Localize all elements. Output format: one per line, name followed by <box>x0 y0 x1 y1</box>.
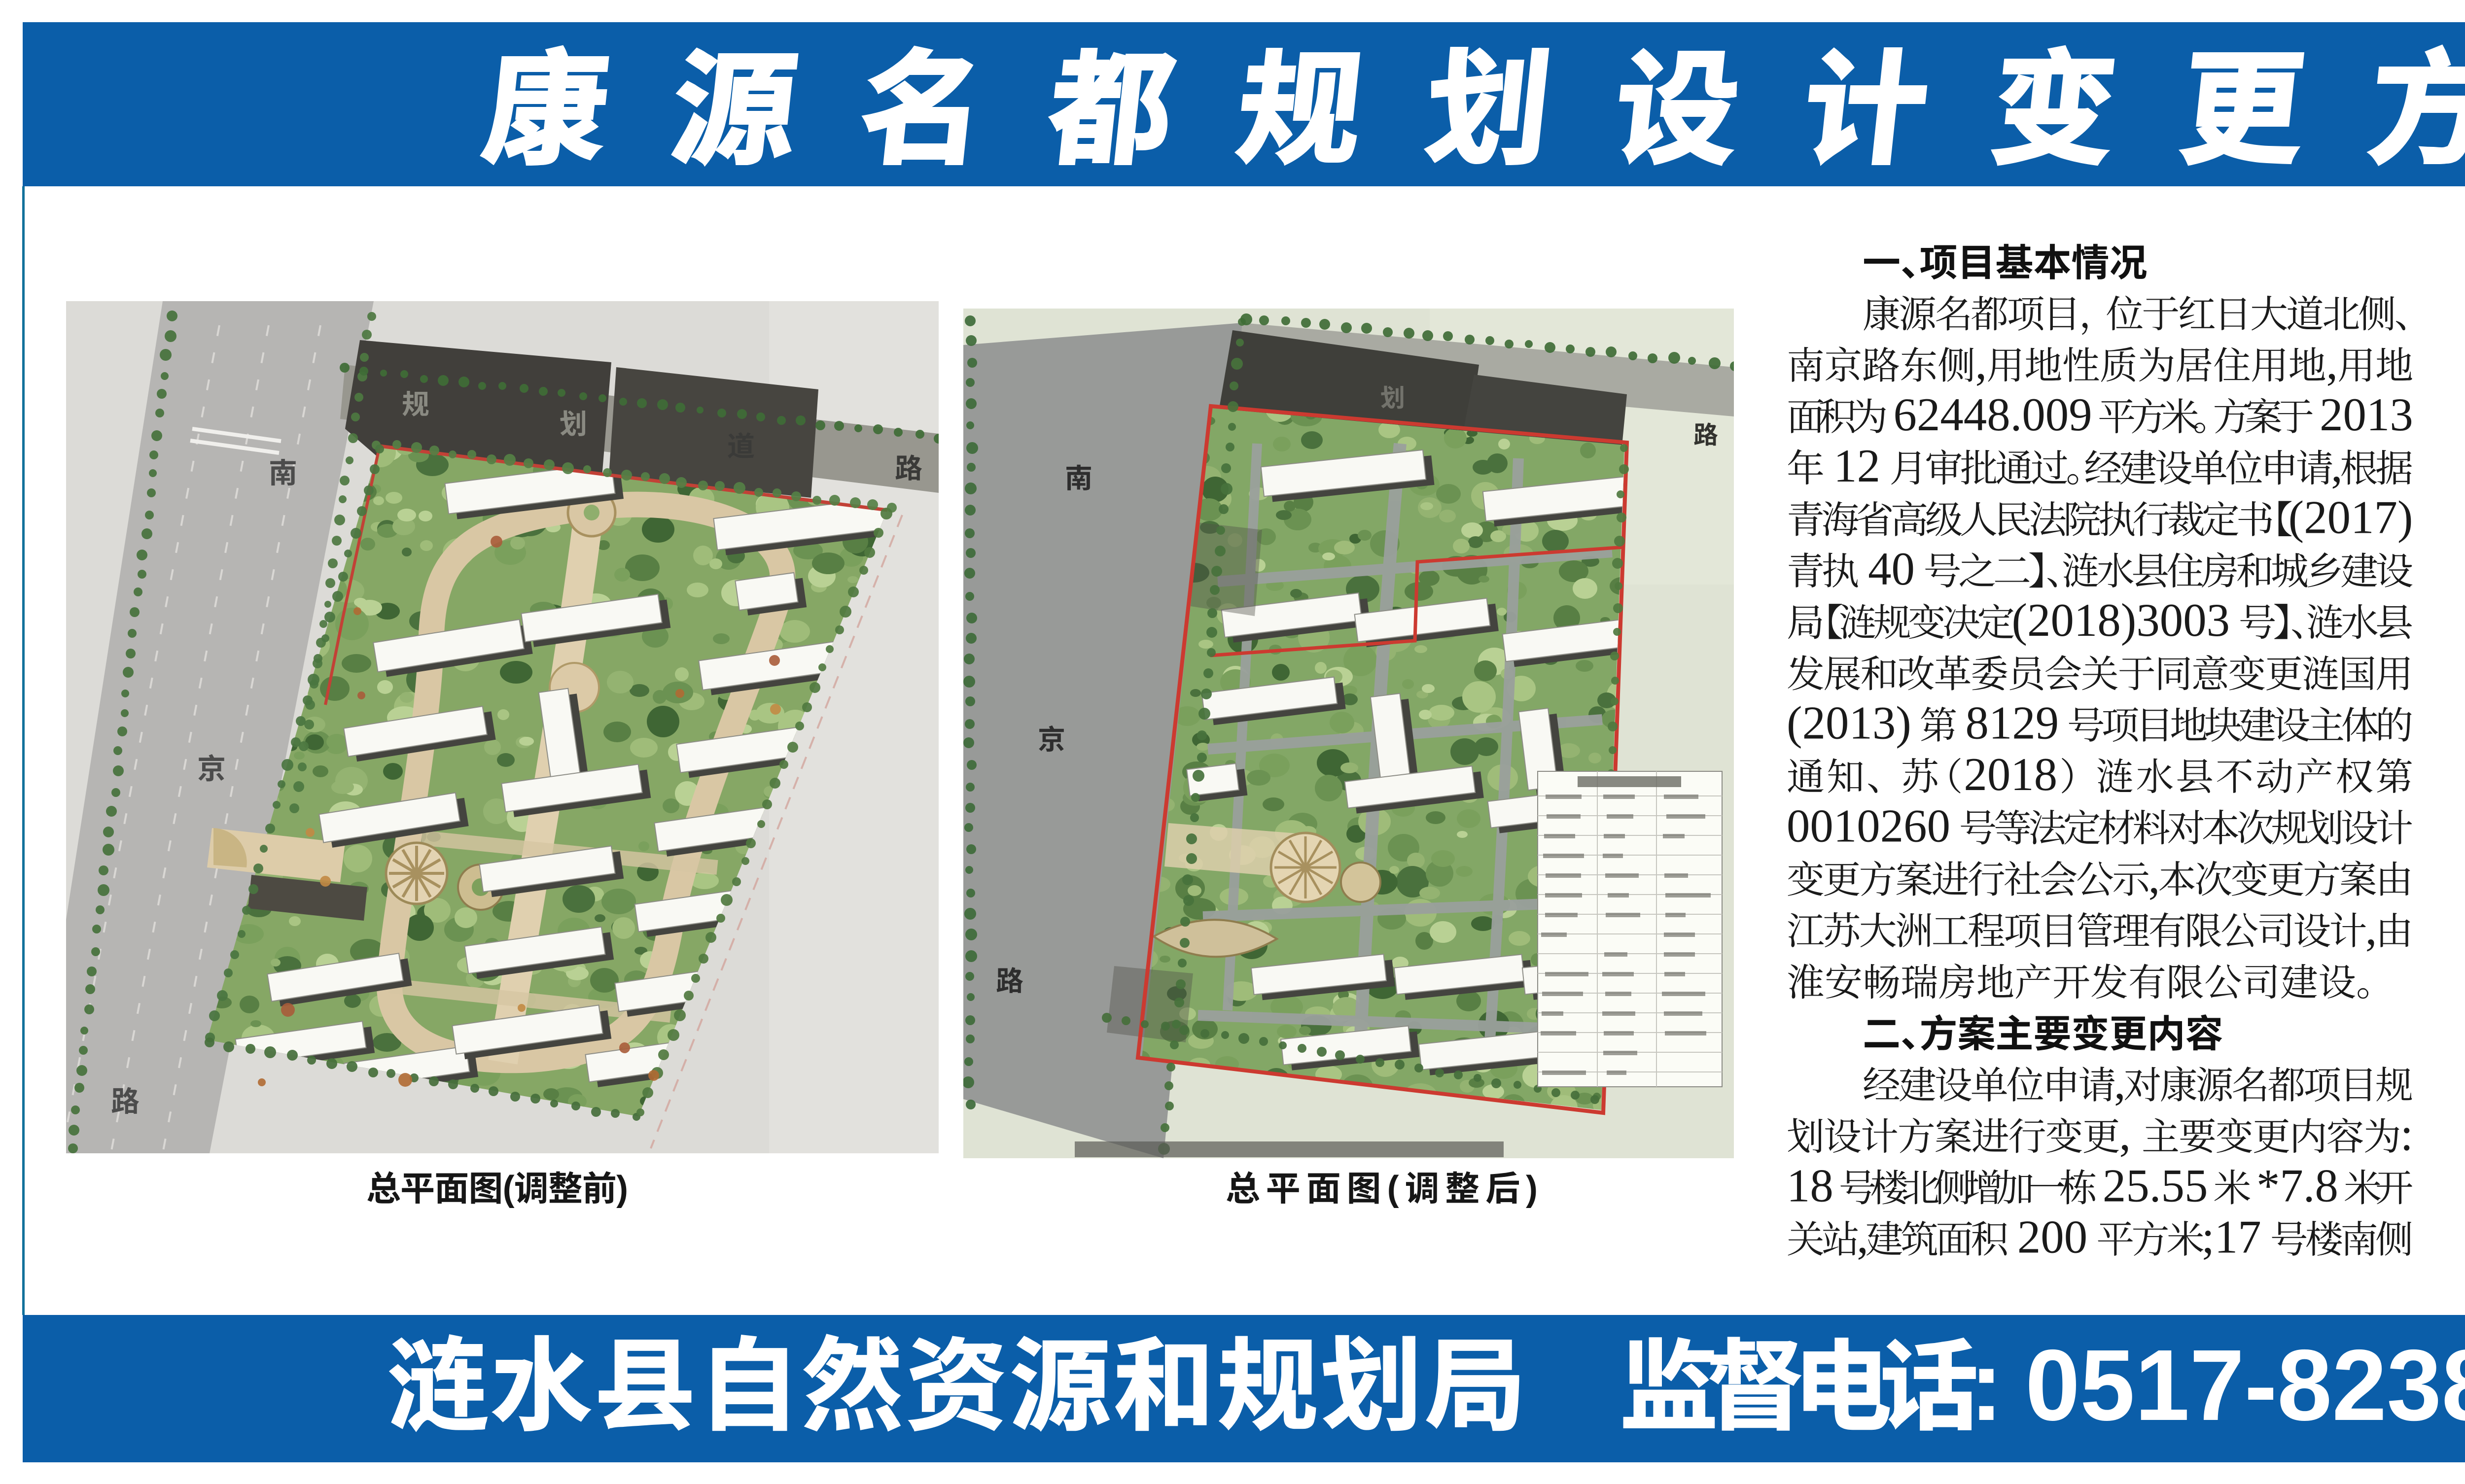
svg-text:,: , <box>2331 440 2343 492</box>
svg-text:8129: 8129 <box>1954 697 2071 749</box>
svg-text:40: 40 <box>1856 543 1926 595</box>
svg-text:,: , <box>2365 902 2377 955</box>
svg-text:200: 200 <box>2006 1211 2099 1263</box>
svg-text::: : <box>1970 1329 2003 1442</box>
svg-text:): ) <box>1526 1169 1538 1208</box>
svg-text:62448.009: 62448.009 <box>1882 388 2104 441</box>
svg-text:(2013): (2013) <box>1787 697 1923 749</box>
svg-text:,: , <box>2326 337 2338 389</box>
svg-text:*7.8: *7.8 <box>2245 1159 2350 1211</box>
svg-text:,: , <box>1975 337 1987 389</box>
svg-text:2018: 2018 <box>1964 748 2057 800</box>
svg-text:(2017): (2017) <box>2289 491 2413 544</box>
svg-text:18: 18 <box>1787 1159 1845 1211</box>
svg-text:0517-82388806: 0517-82388806 <box>2025 1329 2465 1442</box>
svg-text:(: ( <box>1387 1169 1399 1208</box>
svg-text::: : <box>2400 1108 2413 1160</box>
svg-text:12: 12 <box>1822 440 1892 492</box>
svg-text:,: , <box>2114 1057 2126 1109</box>
svg-text:): ) <box>616 1169 628 1208</box>
svg-text:2013: 2013 <box>2308 388 2413 441</box>
svg-text:25.55: 25.55 <box>2091 1159 2219 1211</box>
svg-text:0010260: 0010260 <box>1787 799 1962 852</box>
svg-text:(2018)3003: (2018)3003 <box>2011 594 2241 646</box>
svg-text:(: ( <box>503 1169 515 1208</box>
svg-text:;17: ;17 <box>2201 1211 2273 1263</box>
svg-text:,: , <box>2119 1108 2143 1160</box>
svg-text:,: , <box>2148 851 2160 903</box>
